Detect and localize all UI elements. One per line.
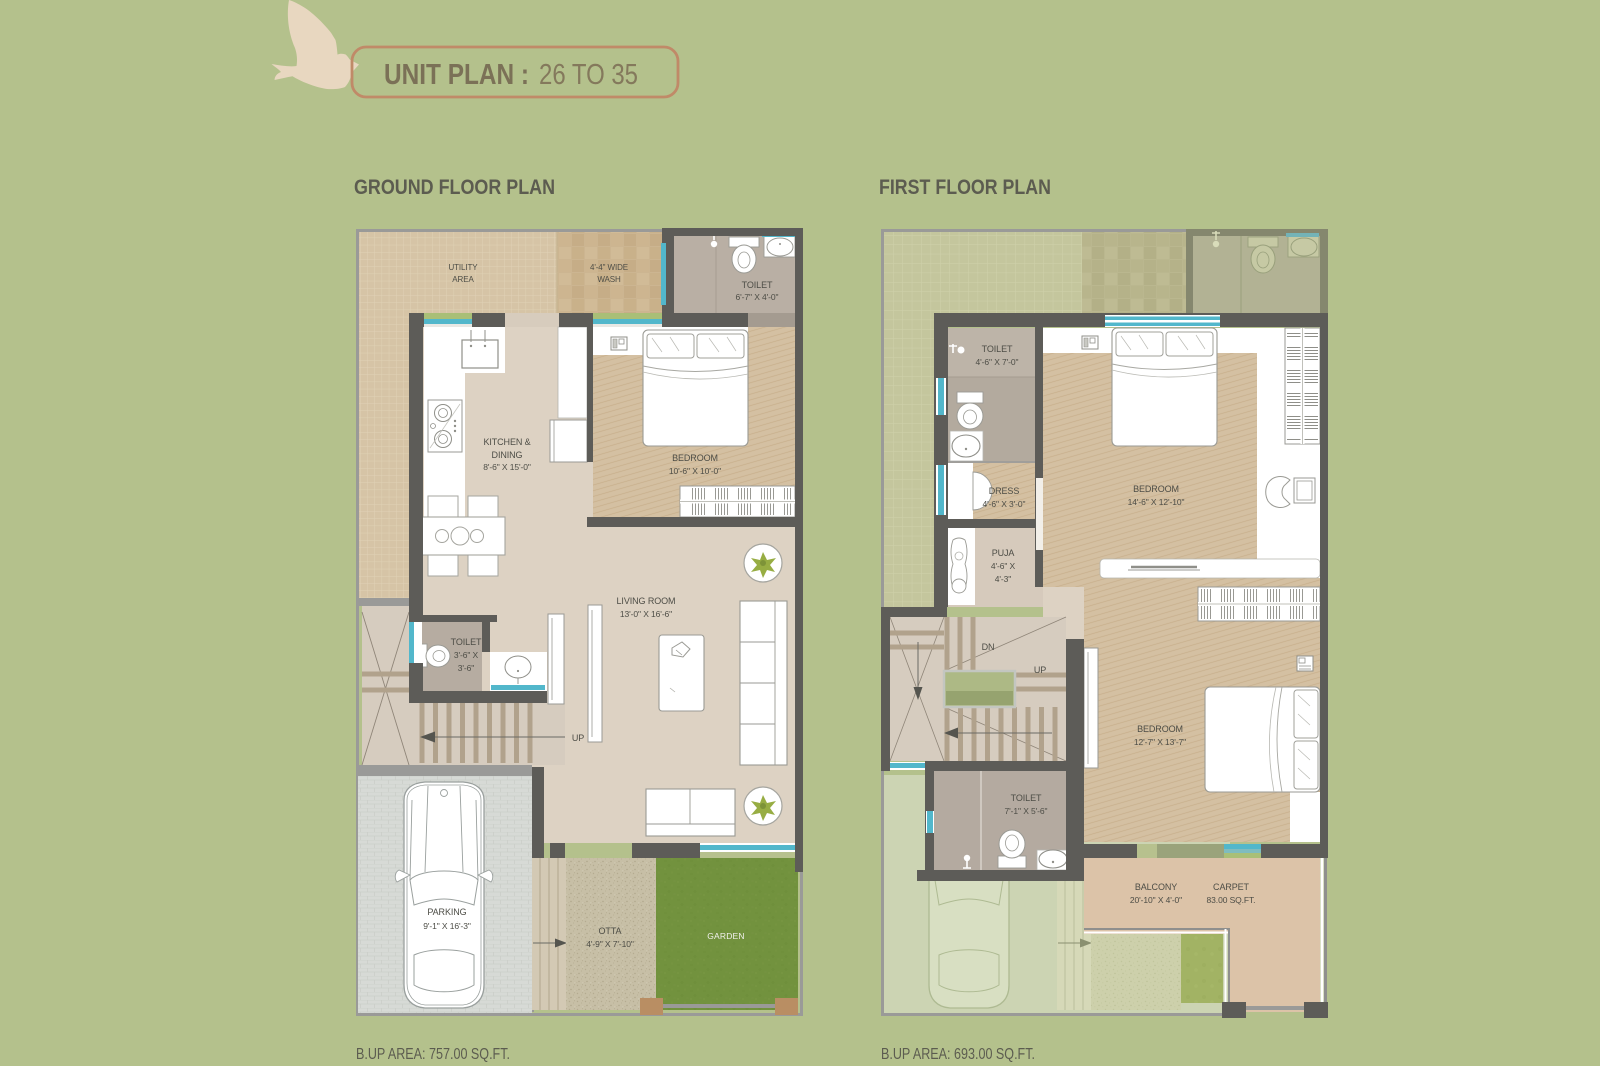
svg-text:PARKING: PARKING <box>427 907 466 917</box>
svg-text:PUJA: PUJA <box>992 548 1015 558</box>
svg-text:TOILET: TOILET <box>982 344 1013 354</box>
svg-text:12'-7" X 13'-7": 12'-7" X 13'-7" <box>1134 737 1186 747</box>
svg-text:6'-7" X 4'-0": 6'-7" X 4'-0" <box>736 292 779 302</box>
svg-text:KITCHEN &: KITCHEN & <box>483 437 530 447</box>
svg-text:WASH: WASH <box>597 275 621 284</box>
svg-text:14'-6" X 12'-10": 14'-6" X 12'-10" <box>1128 497 1185 507</box>
svg-text:4'-3": 4'-3" <box>995 574 1012 584</box>
svg-text:CARPET: CARPET <box>1213 882 1250 892</box>
svg-text:LIVING ROOM: LIVING ROOM <box>617 596 676 606</box>
svg-text:DINING: DINING <box>492 450 523 460</box>
svg-text:4'-6" X 3'-0": 4'-6" X 3'-0" <box>983 499 1026 509</box>
svg-text:20'-10" X 4'-0": 20'-10" X 4'-0" <box>1130 895 1182 905</box>
svg-text:FIRST FLOOR PLAN: FIRST FLOOR PLAN <box>879 176 1051 199</box>
svg-text:TOILET: TOILET <box>451 637 482 647</box>
svg-text:GROUND FLOOR PLAN: GROUND FLOOR PLAN <box>354 176 555 199</box>
svg-text:7'-1" X 5'-6": 7'-1" X 5'-6" <box>1005 806 1048 816</box>
svg-text:BEDROOM: BEDROOM <box>1133 484 1179 494</box>
svg-text:B.UP AREA: 693.00 SQ.FT.: B.UP AREA: 693.00 SQ.FT. <box>881 1046 1035 1063</box>
svg-text:OTTA: OTTA <box>599 926 622 936</box>
svg-text:B.UP AREA: 757.00 SQ.FT.: B.UP AREA: 757.00 SQ.FT. <box>356 1046 510 1063</box>
svg-text:4'-9" X 7'-10": 4'-9" X 7'-10" <box>586 939 634 949</box>
svg-text:TOILET: TOILET <box>742 280 773 290</box>
svg-text:4'-6" X: 4'-6" X <box>991 561 1016 571</box>
svg-text:3'-6" X: 3'-6" X <box>454 650 479 660</box>
svg-text:13'-0" X 16'-6": 13'-0" X 16'-6" <box>620 609 672 619</box>
svg-text:UP: UP <box>1034 665 1046 675</box>
svg-text:10'-6" X 10'-0": 10'-6" X 10'-0" <box>669 466 721 476</box>
svg-text:UNIT PLAN :: UNIT PLAN : <box>384 59 529 91</box>
svg-text:TOILET: TOILET <box>1011 793 1042 803</box>
svg-text:UTILITY: UTILITY <box>448 263 478 272</box>
svg-text:8'-6" X 15'-0": 8'-6" X 15'-0" <box>483 462 531 472</box>
svg-text:BEDROOM: BEDROOM <box>672 453 718 463</box>
svg-text:26 TO 35: 26 TO 35 <box>539 59 638 91</box>
svg-text:DN: DN <box>982 642 995 652</box>
svg-text:4'-6" X 7'-0": 4'-6" X 7'-0" <box>976 357 1019 367</box>
svg-text:GARDEN: GARDEN <box>707 931 745 941</box>
svg-text:UP: UP <box>572 733 584 743</box>
svg-text:DRESS: DRESS <box>989 486 1020 496</box>
svg-text:4'-4" WIDE: 4'-4" WIDE <box>590 263 628 272</box>
svg-text:83.00 SQ.FT.: 83.00 SQ.FT. <box>1207 895 1256 905</box>
svg-text:BEDROOM: BEDROOM <box>1137 724 1183 734</box>
svg-text:BALCONY: BALCONY <box>1135 882 1177 892</box>
svg-text:AREA: AREA <box>452 275 474 284</box>
svg-text:3'-6": 3'-6" <box>458 663 475 673</box>
svg-text:9'-1" X 16'-3": 9'-1" X 16'-3" <box>423 921 471 931</box>
